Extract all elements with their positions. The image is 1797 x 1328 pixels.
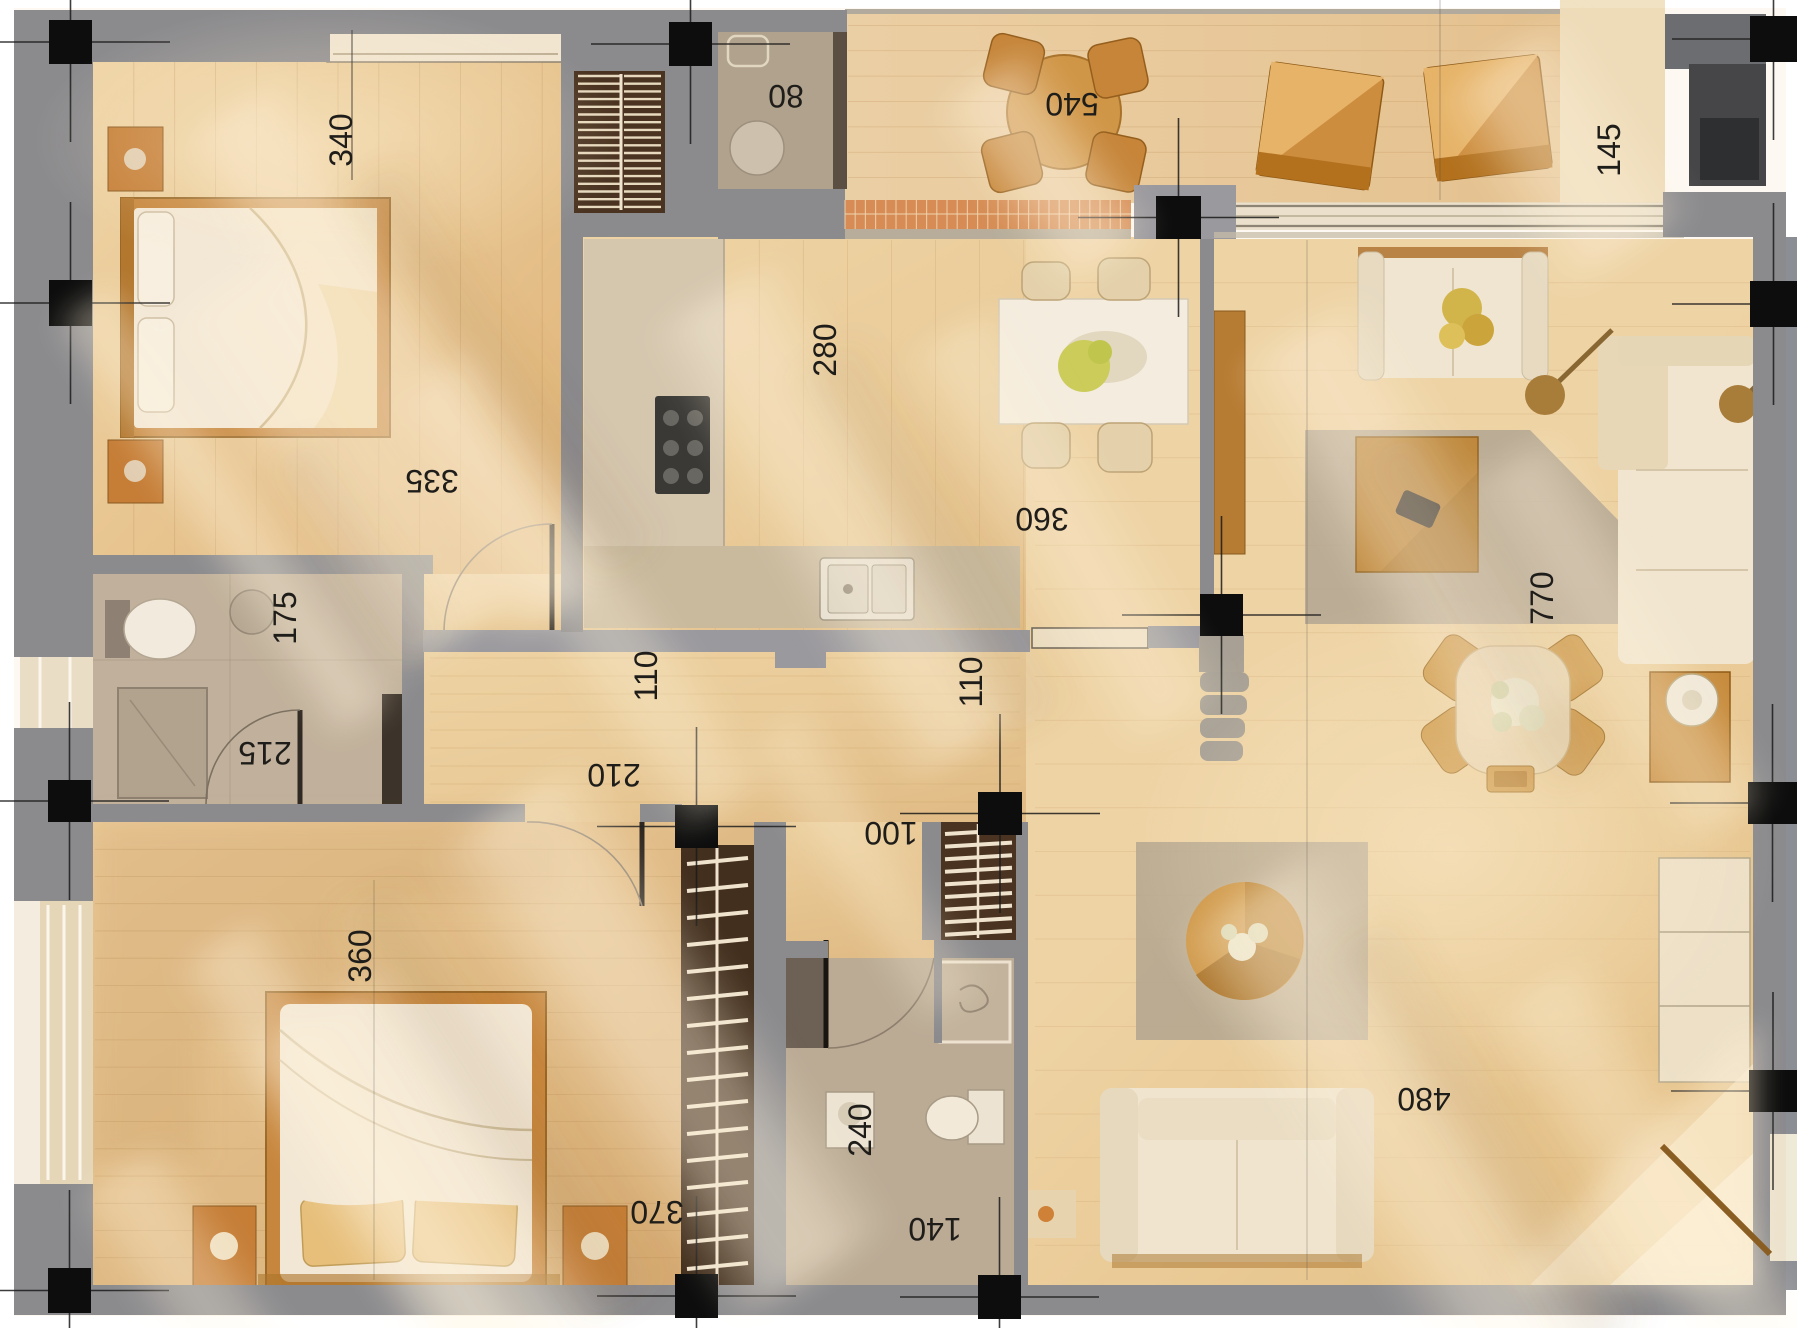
svg-text:110: 110 [953, 656, 989, 707]
svg-text:335: 335 [405, 463, 458, 499]
svg-text:210: 210 [587, 757, 640, 793]
svg-text:145: 145 [1591, 123, 1627, 176]
svg-text:100: 100 [864, 815, 917, 851]
svg-text:480: 480 [1397, 1081, 1450, 1117]
svg-text:80: 80 [768, 78, 804, 114]
svg-text:215: 215 [238, 735, 291, 771]
svg-text:110: 110 [628, 650, 664, 701]
svg-text:340: 340 [323, 113, 359, 166]
svg-text:370: 370 [630, 1194, 683, 1230]
svg-text:280: 280 [807, 323, 843, 376]
svg-text:360: 360 [1015, 501, 1068, 537]
svg-text:240: 240 [842, 1103, 878, 1156]
svg-text:175: 175 [267, 591, 303, 644]
svg-text:540: 540 [1045, 86, 1098, 122]
svg-text:360: 360 [342, 929, 378, 982]
svg-text:770: 770 [1524, 571, 1560, 624]
svg-text:140: 140 [908, 1211, 961, 1247]
